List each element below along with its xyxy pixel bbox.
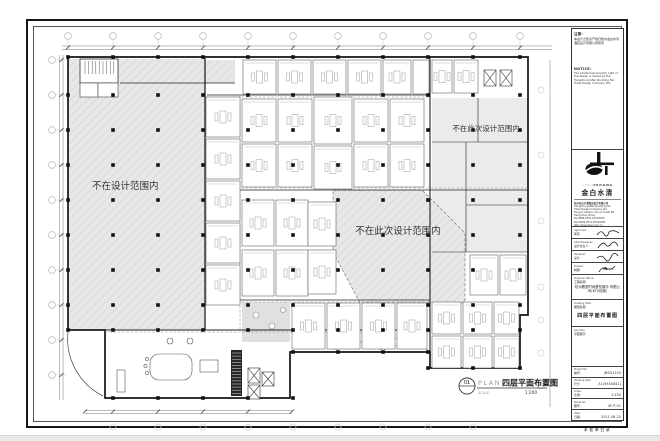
notice-section: 注意: 本设计之知识产权归杭州金白水清酒店设计有限公司所有 NOTICE: Th… xyxy=(572,29,623,150)
plan-mark-scale-value: 1:200 xyxy=(525,390,537,395)
title-block: 注意: 本设计之知识产权归杭州金白水清酒店设计有限公司所有 NOTICE: Th… xyxy=(571,28,624,421)
door-swing-arc xyxy=(68,332,103,396)
zone-center-label: 不在此次设计范围内 xyxy=(355,225,441,237)
meta-section: Project No: 编号: JBSQ1103 Drawing Size: 尺… xyxy=(572,367,623,420)
notice-heading-cn: 注意: xyxy=(574,31,621,36)
plan-mark-scale-word: SCALE xyxy=(478,391,489,395)
company-info: 杭州金白水清酒店设计有限公司 Hangzhou JinBai ShuiQing … xyxy=(574,199,621,227)
zone-topstrip-hatch xyxy=(120,60,235,83)
signature-scribble xyxy=(595,240,621,250)
notice-body-cn: 本设计之知识产权归杭州金白水清酒店设计有限公司所有 xyxy=(574,37,621,45)
signature-row-chief-designer: Chief Designer: 设计负责人: xyxy=(572,239,623,251)
signature-row-drawer: Drawer: 制图: xyxy=(572,263,623,275)
meta-date: Date: 日期: 2011.06.25 xyxy=(572,410,623,420)
notice-body-en: The intellectual property right of the d… xyxy=(574,72,621,86)
meta-drawing-size: Drawing Size: 尺寸: A1(594X841) xyxy=(572,378,623,389)
zone-topright-label: 不在此次设计范围内 xyxy=(452,123,520,133)
meta-scale: Scale: 比例: 1:200 xyxy=(572,389,623,400)
engineer-name-value: 杭州殿堂时尚餐饮娱乐 有限公司(KTV包厢) xyxy=(574,285,621,294)
signature-scribble xyxy=(595,228,621,238)
meta-sheet-no: Sheet No: 图号: 4F-P-01 xyxy=(572,399,623,410)
brand-name-cn: 金白水清 xyxy=(574,187,621,197)
drawing-title-value: 四层平面布置图 xyxy=(574,312,621,319)
drawing-title-section: Drawing Title: 图纸名称: 四层平面布置图 xyxy=(572,300,623,327)
signature-row-designer: Designer: 设计: xyxy=(572,251,623,263)
floor-plan-canvas: 不在设计范围内 不在此次设计范围内 不在此次设计范围内 01 PLAN 四层平面… xyxy=(0,0,660,440)
brand-name-en: JINBAISHUIQING xyxy=(574,183,621,187)
escalator xyxy=(231,350,242,396)
notice-heading-en: NOTICE: xyxy=(574,67,621,71)
signature-scribble xyxy=(595,252,621,262)
zone-left-label: 不在设计范围内 xyxy=(92,180,159,192)
page-bottom-strip xyxy=(0,435,660,441)
stair-top-left xyxy=(80,59,118,97)
key-plan-section: Key Plan: 平面图示: xyxy=(572,327,623,367)
logo-section: JINBAISHUIQING 金白水清 杭州金白水清酒店设计有限公司 Hangz… xyxy=(572,150,623,227)
company-logo-icon xyxy=(581,152,615,178)
title-block-footer-caption: 本套单目录 xyxy=(571,427,624,433)
engineer-name-section: Engineer Name: 工程名称: 杭州殿堂时尚餐饮娱乐 有限公司(KTV… xyxy=(572,275,623,300)
signature-row-approved: Approved: 审定: xyxy=(572,227,623,239)
zone-left-hatch xyxy=(68,59,205,330)
plan-mark-number: 01 xyxy=(464,380,470,386)
plan-mark-title: 四层平面布置图 xyxy=(502,378,558,388)
meta-project-no: Project No: 编号: JBSQ1103 xyxy=(572,367,623,378)
plan-title-mark: 01 PLAN 四层平面布置图 SCALE 1:200 xyxy=(459,378,558,396)
plan-mark-word: PLAN xyxy=(478,379,501,387)
signature-scribble xyxy=(595,264,621,274)
drawing-sheet-page: { "plan": { "zone_left_label": "不在设计范围内"… xyxy=(0,0,660,440)
